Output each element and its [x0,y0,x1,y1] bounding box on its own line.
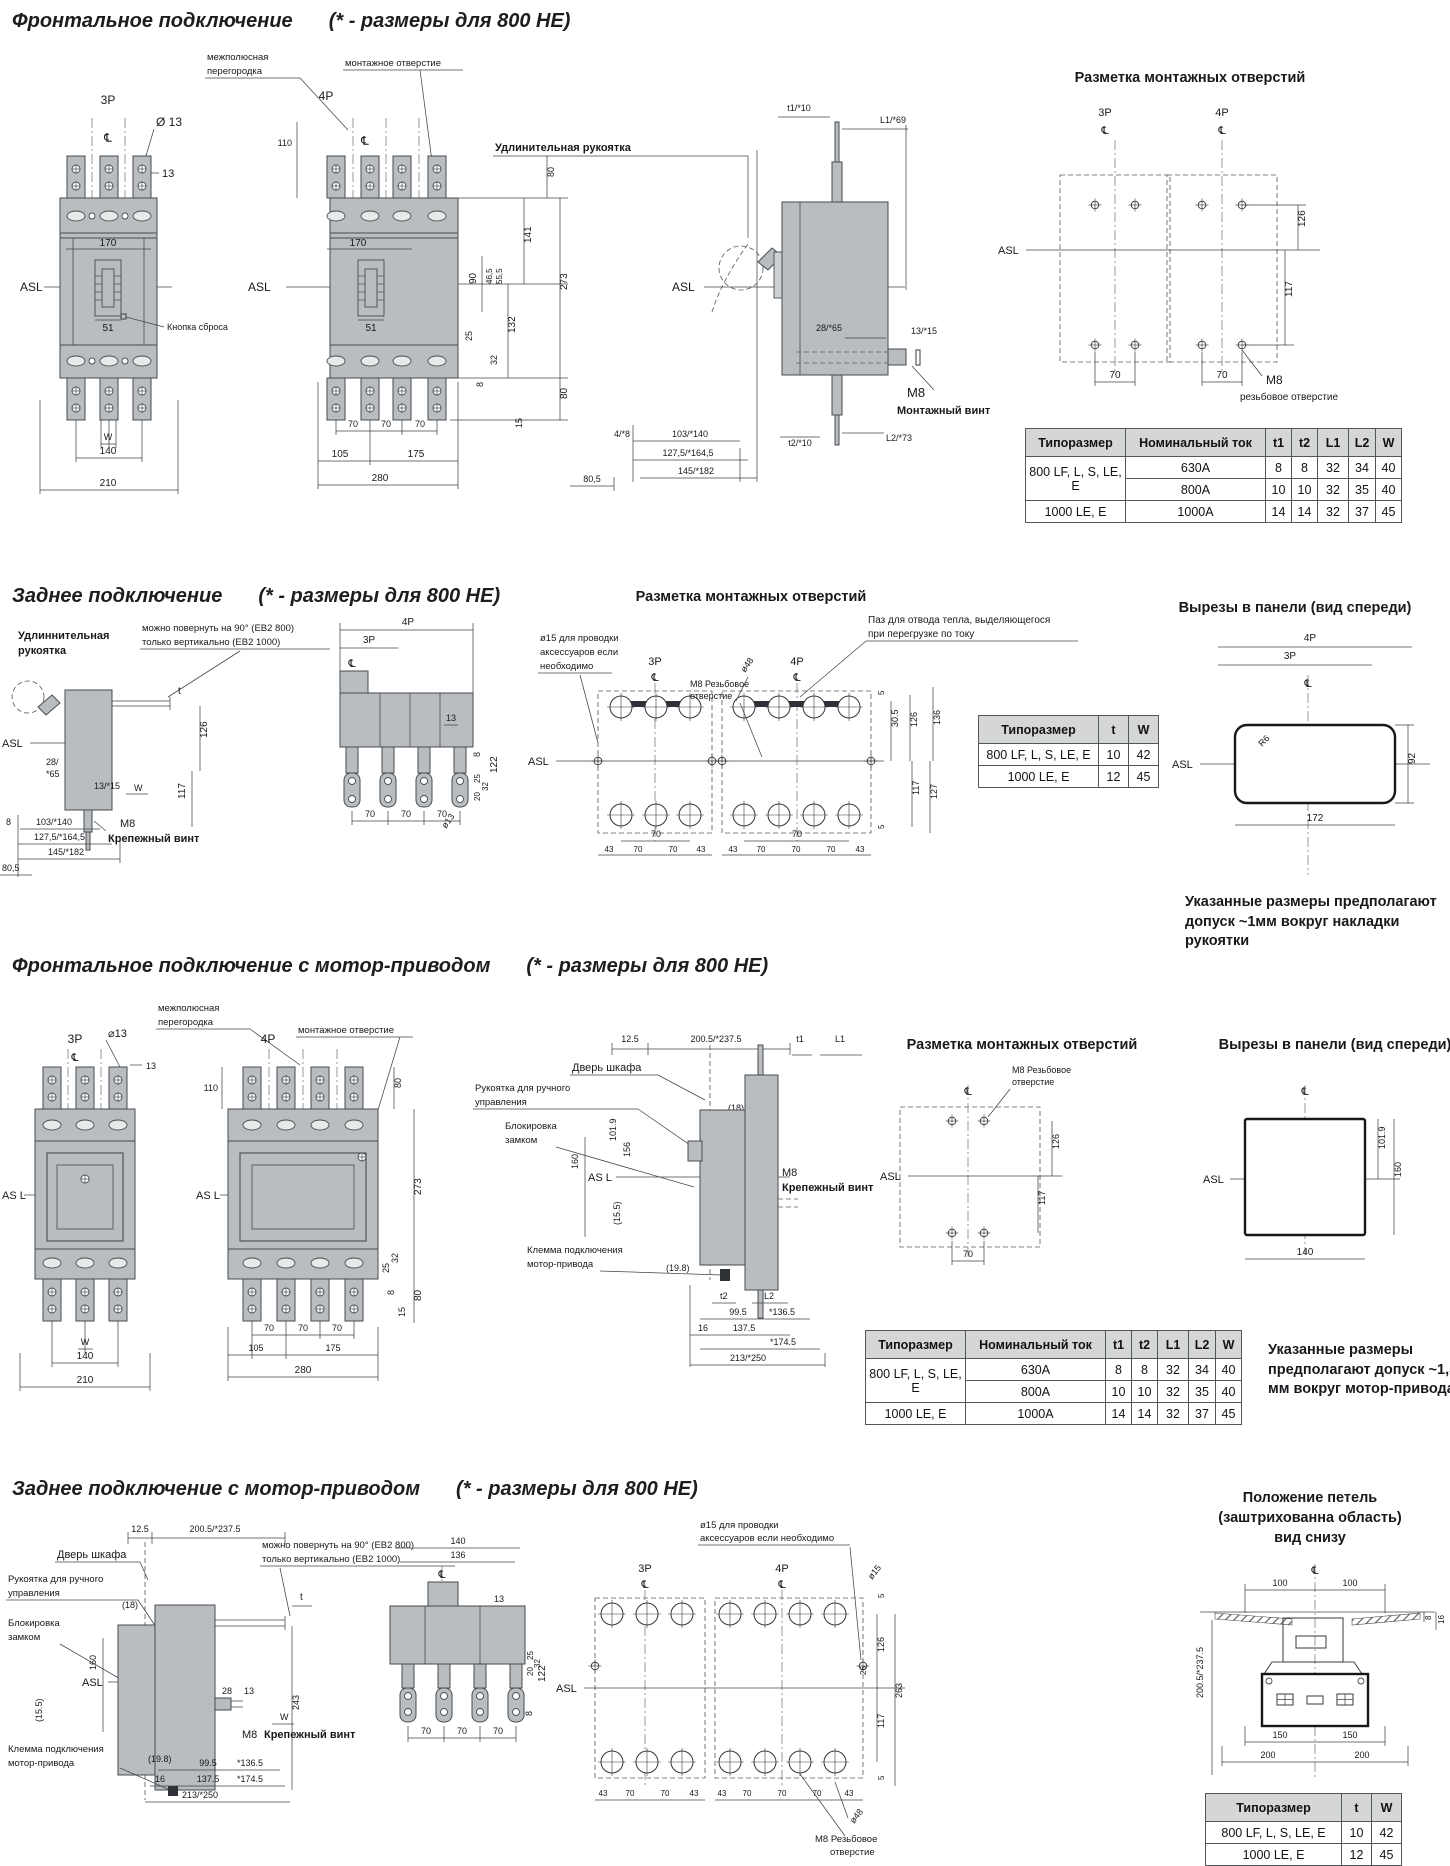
table-cell: t2 [1132,1331,1158,1359]
dim-label: 16 [155,1774,165,1784]
dim-label: 136 [932,710,942,725]
dim-label: 280 [372,473,389,484]
callout-label: перегородка [207,66,263,77]
dim-label: 70 [963,1249,973,1259]
drawing-subtitle: Разметка монтажных отверстий [1075,70,1306,86]
dim-label: 43 [718,1789,727,1798]
dim-label: 90 [468,272,479,284]
dimension-table-front-motor: ТипоразмерНоминальный токt1t2L1L2W 800 L… [865,1330,1242,1425]
drawing-rear-view: 4P 3P ℄ 13 707070 8 122 25 32 20 ø13 [340,617,500,830]
dim-label: 70 [264,1323,274,1333]
dim-label: 101.9 [608,1118,618,1141]
table-cell: 14 [1132,1403,1158,1425]
callout-label: Клемма подключения [8,1744,104,1755]
drawing-mounting-holes: Разметка монтажных отверстий 3P ℄ 4P ℄ A… [998,70,1339,403]
dim-label: 13 [244,1686,254,1696]
callout-label: Кнопка сброса [167,322,228,332]
table-cell: 14 [1106,1403,1132,1425]
dimension-table-rear: ТипоразмерtW 800 LF, L, S, LE, E1042 100… [978,715,1159,788]
dim-label: 117 [911,781,921,795]
dim-label: 70 [626,1789,635,1798]
centerline-symbol: ℄ [1217,125,1225,137]
table-cell: 800A [1126,479,1266,501]
dim-label: 5 [877,824,886,829]
table-cell: 12 [1099,766,1129,788]
table-cell: 32 [1158,1381,1189,1403]
dim-label: 200.5/*237.5 [690,1034,741,1044]
dim-label: 16 [1437,1615,1446,1624]
callout-label: замком [505,1135,537,1146]
callout-label: Паз для отвода тепла, выделяющегося [868,615,1050,626]
dim-label: 4/*8 [614,429,630,439]
callout-label: можно повернуть на 90° (EB2 800) [262,1540,414,1551]
dim-label: 100 [1342,1578,1357,1588]
table-cell: 1000 LE, E [979,766,1099,788]
dim-label: 28/*65 [816,323,842,333]
dim-label: M8 [242,1729,257,1741]
callout-label: резьбовое отверстие [1240,391,1339,403]
dim-label: 117 [1284,281,1295,297]
dim-label: 126 [199,721,210,738]
dim-label: 70 [415,419,425,429]
dim-label: 92 [1407,752,1418,764]
dim-label: 160 [1393,1162,1403,1177]
dim-label: 70 [778,1789,787,1798]
dim-label: 25 [464,331,474,341]
table-cell: L2 [1349,429,1376,457]
dim-label: 145/*182 [678,466,714,476]
table-cell: 1000 LE, E [866,1403,966,1425]
dim-label: 150 [1272,1730,1287,1740]
dim-label: (19.8) [666,1263,690,1273]
callout-label: отверстие [1012,1077,1054,1087]
dim-label: 70 [381,419,391,429]
dim-label: 80 [393,1078,403,1088]
dim-label: *174.5 [770,1337,796,1347]
drawing-canvas-rear-connection: Удлиннительная рукоятка можно повернуть … [0,575,1450,945]
asl-label: ASL [248,280,271,294]
asl-label: ASL [998,245,1019,257]
dim-label: 140 [77,1351,94,1362]
dim-label: 126 [1051,1134,1061,1149]
centerline-symbol: ℄ [347,658,355,670]
asl-label: ASL [556,1683,577,1695]
dim-label: 70 [421,1726,431,1736]
dim-label: 15 [514,418,524,428]
dim-label: 70 [493,1726,503,1736]
tolerance-note: Указанные размеры предполагают допуск ~1… [1268,1341,1450,1400]
callout-label: M8 Резьбовое [1012,1065,1071,1075]
table-cell: 42 [1129,744,1159,766]
dim-label: 43 [845,1789,854,1798]
asl-label: ASL [880,1171,901,1183]
dim-label: 156 [622,1142,632,1157]
dim-label: t2/*10 [788,438,812,448]
drawing-panel-cutout: Вырезы в панели (вид спереди) ℄ ASL 101.… [1203,1037,1450,1259]
callout-label: при перегрузке по току [868,629,974,640]
drawing-mounting-holes: ø15 для проводки аксессуаров если необхо… [556,1520,905,1858]
table-cell: Номинальный ток [966,1331,1106,1359]
dim-label: 13 [162,168,174,180]
dim-label: L1 [835,1034,845,1044]
centerline-symbol: ℄ [103,131,112,145]
dim-label: 43 [690,1789,699,1798]
callout-label: рукоятка [18,645,67,657]
table-cell: 40 [1216,1381,1242,1403]
dim-label: *136.5 [769,1307,795,1317]
callout-label: Рукоятка для ручного [8,1574,103,1585]
dim-label: 70 [757,845,766,854]
dim-label: 13 [494,1594,504,1604]
dim-label: 172 [1307,813,1324,824]
callout-label: необходимо [540,661,593,672]
drawing-subtitle: Разметка монтажных отверстий [636,589,867,605]
drawing-subtitle: Положение петель [1243,1490,1378,1506]
dim-label: 200 [1354,1750,1369,1760]
callout-label: M8 Резьбовое [690,679,749,689]
asl-label: ASL [2,738,23,750]
dim-label: 140 [100,446,117,457]
dim-label: 80,5 [2,863,20,873]
centerline-symbol: ℄ [437,1569,445,1581]
dim-label: ⌀13 [108,1028,127,1040]
table-cell: 12 [1342,1844,1372,1866]
callout-label: монтажное отверстие [298,1025,394,1036]
dim-label: 117 [177,783,188,799]
dim-label: 137.5 [197,1774,220,1784]
dim-label: 150 [1342,1730,1357,1740]
dim-label: 200.5/*237.5 [189,1524,240,1534]
dim-label: Ø 13 [156,115,182,129]
dim-label: 28 [222,1686,232,1696]
dim-label: 80 [559,387,570,399]
dim-label: 3P [363,635,376,646]
drawing-subtitle: Разметка монтажных отверстий [907,1037,1138,1053]
dim-label: 70 [669,845,678,854]
dim-label: 25 [526,1651,535,1660]
table-cell: 10 [1342,1822,1372,1844]
centerline-symbol: ℄ [640,1579,648,1591]
table-cell: W [1376,429,1402,457]
table-cell: 45 [1372,1844,1402,1866]
table-cell: 10 [1106,1381,1132,1403]
table-cell: 32 [1318,479,1349,501]
table-cell: 630A [1126,457,1266,479]
dim-label: 70 [1216,370,1228,381]
table-cell: 10 [1132,1381,1158,1403]
section-front-connection: Фронтальное подключение(* - размеры для … [0,0,1450,575]
dim-label: 103/*140 [672,429,708,439]
asl-label: AS L [588,1172,612,1184]
view-label: 3P [1098,107,1111,119]
dim-label: 8 [524,1711,534,1716]
dim-label: 43 [729,845,738,854]
centerline-symbol: ℄ [1303,678,1311,690]
table-cell: 8 [1106,1359,1132,1381]
table-cell: Типоразмер [979,716,1099,744]
dim-label: 100 [1272,1578,1287,1588]
drawing-subtitle: (заштрихованна область) [1218,1510,1402,1526]
dim-label: 5 [877,1775,886,1780]
section-rear-connection-motor: Заднее подключение с мотор-приводом(* - … [0,1470,1450,1866]
table-cell: L1 [1318,429,1349,457]
table-cell: L2 [1189,1331,1216,1359]
table-cell: 32 [1318,457,1349,479]
dim-label: 70 [332,1323,342,1333]
callout-label: мотор-привода [527,1259,594,1270]
dim-label: 99.5 [729,1307,747,1317]
centerline-symbol: ℄ [792,672,800,684]
centerline-symbol: ℄ [1300,1086,1308,1098]
dim-label: 4P [402,617,415,628]
callout-label: Клемма подключения [527,1245,623,1256]
dim-label: 105 [248,1343,263,1353]
table-cell: 45 [1376,501,1402,523]
dim-label: 140 [1297,1247,1314,1258]
table-cell: 40 [1376,479,1402,501]
callout-label: Рукоятка для ручного [475,1083,570,1094]
centerline-symbol: ℄ [1310,1565,1318,1577]
dim-label: 132 [507,316,518,333]
callout-label: только вертикально (EB2 1000) [142,637,280,648]
dimension-table-front: ТипоразмерНоминальный токt1t2L1L2W 800 L… [1025,428,1402,523]
view-label: 3P [68,1032,83,1046]
table-cell: 8 [1266,457,1292,479]
dim-label: *174.5 [237,1774,263,1784]
dim-label: 70 [743,1789,752,1798]
drawing-side-view-motor: 12.5 200.5/*237.5 t1L1 Дверь шкафа Рукоя… [473,1034,874,1367]
table-cell: t [1342,1794,1372,1822]
dim-label: 30.5 [890,709,900,727]
dim-label: 8 [475,382,485,387]
dim-label: 32 [481,782,490,791]
table-cell: 800 LF, L, S, LE, E [866,1359,966,1403]
table-cell: 1000A [1126,501,1266,523]
dim-label: 160 [88,1655,98,1670]
table-cell: 800A [966,1381,1106,1403]
drawing-panel-cutout: Вырезы в панели (вид спереди) 4P 3P ℄ AS… [1172,600,1430,875]
table-cell: 37 [1189,1403,1216,1425]
dim-label: t1 [796,1034,804,1044]
table-cell: 34 [1189,1359,1216,1381]
dim-label: 213/*250 [182,1790,218,1800]
table-cell: 8 [1292,457,1318,479]
view-label: 4P [261,1032,276,1046]
dim-label: 43 [856,845,865,854]
dim-label: 110 [204,1083,218,1093]
dim-label: L2/*73 [886,433,912,443]
dimension-table-rear-motor: ТипоразмерtW 800 LF, L, S, LE, E1042 100… [1205,1793,1402,1866]
callout-label: монтажное отверстие [345,58,441,69]
dim-label: 80,5 [583,474,601,484]
callout-label: можно повернуть на 90° (EB2 800) [142,623,294,634]
table-cell: 14 [1266,501,1292,523]
dim-label: 43 [605,845,614,854]
dim-label: 70 [661,1789,670,1798]
dim-label: 28/ [46,757,59,767]
dim-label: 8 [6,817,11,827]
view-label: 3P [638,1563,651,1575]
drawing-side-view-motor: 12.5 200.5/*237.5 Дверь шкафа можно пове… [6,1524,455,1802]
table-cell: 40 [1376,457,1402,479]
dim-label: 8 [1424,1615,1433,1620]
dim-label: *136.5 [237,1758,263,1768]
table-cell: Типоразмер [1026,429,1126,457]
dim-label: 70 [298,1323,308,1333]
catalog-page: Фронтальное подключение(* - размеры для … [0,0,1450,1866]
centerline-symbol: ℄ [650,672,658,684]
dim-label: 117 [876,1714,886,1728]
section-front-connection-motor: Фронтальное подключение с мотор-приводом… [0,945,1450,1470]
centerline-symbol: ℄ [360,134,369,148]
tolerance-note: Указанные размеры предполагают допуск ~1… [1185,893,1450,952]
dim-label: 4P [1304,633,1317,644]
drawing-side-view: Удлинительная рукоятка ASL t1/*10 L1/*69… [493,103,991,491]
table-cell: 35 [1189,1381,1216,1403]
callout-label: Дверь шкафа [572,1062,642,1074]
dim-label: 12.5 [621,1034,639,1044]
dim-label: 122 [489,756,500,773]
table-cell: 10 [1266,479,1292,501]
dim-label: 15 [397,1307,407,1317]
callout-label: Удлинительная рукоятка [495,142,632,154]
dim-label: 127,5/*164,5 [662,448,713,458]
callout-label: ø15 для проводки [540,633,619,644]
dim-label: 8 [472,752,482,757]
dim-label: 141 [523,226,534,243]
table-cell: 32 [1318,501,1349,523]
table-cell: 800 LF, L, S, LE, E [1206,1822,1342,1844]
dim-label: 70 [792,829,802,839]
dim-label: 110 [278,138,292,148]
dim-label: t1/*10 [787,103,811,113]
view-label: 4P [775,1563,788,1575]
dim-label: 170 [350,238,367,249]
dim-label: M8 [907,385,925,400]
dim-label: 32 [489,355,499,365]
dim-label: 26 [859,1666,868,1675]
table-cell: 45 [1216,1403,1242,1425]
dim-label: 126 [909,712,919,727]
dim-label: 175 [325,1343,340,1353]
dim-label: W [81,1337,90,1347]
dim-label: 51 [365,323,377,334]
dim-label: 126 [876,1637,886,1652]
dim-label: 263 [894,1683,904,1698]
table-cell: 1000 LE, E [1026,501,1126,523]
asl-label: AS L [196,1190,220,1202]
dim-label: 145/*182 [48,847,84,857]
asl-label: ASL [20,280,43,294]
table-cell: 800 LF, L, S, LE, E [1026,457,1126,501]
callout-label: аксессуаров если необходимо [700,1533,834,1544]
dim-label: 25 [381,1263,391,1273]
drawing-front-3p-view: 3P ℄ Ø 13 13 170 51 Кнопка сброса ASL [20,93,228,494]
callout-label: межполюсная [158,1003,219,1014]
dim-label: 273 [559,273,570,290]
dim-label: 70 [634,845,643,854]
dim-label: 5 [877,690,886,695]
callout-label: Блокировка [8,1618,61,1629]
drawing-rear-view: 140 136 ℄ 13 707070 122 8 25 32 20 [390,1536,548,1742]
table-cell: 45 [1129,766,1159,788]
callout-label: Крепежный винт [782,1182,874,1194]
table-cell: 32 [1158,1403,1189,1425]
callout-label: управления [475,1097,527,1108]
table-cell: 40 [1216,1359,1242,1381]
callout-label: M8 Резьбовое [815,1834,877,1845]
drawing-side-view: Удлиннительная рукоятка можно повернуть … [0,623,330,877]
table-cell: W [1216,1331,1242,1359]
table-cell: Типоразмер [1206,1794,1342,1822]
dim-label: 46,5 [485,268,494,284]
dim-label: 3P [1284,651,1297,662]
dim-label: 70 [457,1726,467,1736]
dim-label: 103/*140 [36,817,72,827]
centerline-symbol: ℄ [1100,125,1108,137]
callout-label: Дверь шкафа [57,1549,127,1561]
dim-label: t2 [720,1291,728,1301]
dim-label: 105 [332,449,349,460]
dim-label: 126 [1297,210,1308,227]
dim-label: L1/*69 [880,115,906,125]
dim-label: 243 [291,1695,301,1710]
dim-label: 43 [697,845,706,854]
dim-label: 280 [295,1365,312,1376]
table-cell: Номинальный ток [1126,429,1266,457]
table-cell: 32 [1158,1359,1189,1381]
dim-label: 127 [929,784,939,799]
asl-label: ASL [672,280,695,294]
callout-label: перегородка [158,1017,214,1028]
dim-label: 70 [348,419,358,429]
table-cell: t [1099,716,1129,744]
table-cell: 800 LF, L, S, LE, E [979,744,1099,766]
dim-label: L2 [764,1291,774,1301]
dim-label: t [300,1592,303,1603]
callout-label: только вертикально (EB2 1000) [262,1554,400,1565]
asl-label: ASL [1172,759,1193,771]
drawing-hinge-position: Положение петель (заштрихованна область)… [1195,1490,1446,1780]
dim-label: 273 [413,1178,424,1195]
drawing-subtitle: вид снизу [1274,1530,1346,1546]
dim-label: 43 [599,1789,608,1798]
drawing-front-4p-view: межполюсная перегородка 4P монтажное отв… [156,1003,424,1381]
callout-label: Блокировка [505,1121,558,1132]
dim-label: W [280,1712,289,1722]
dim-label: 160 [570,1154,580,1169]
asl-label: AS L [2,1190,26,1202]
dim-label: 13 [446,713,456,723]
view-label: 3P [648,656,661,668]
callout-label: Монтажный винт [897,405,991,417]
dim-label: 13 [146,1061,156,1071]
dim-label: 51 [102,323,114,334]
dim-label: 117 [1037,1191,1047,1205]
dim-label: 70 [401,809,411,819]
centerline-symbol: ℄ [963,1086,971,1098]
table-cell: t1 [1106,1331,1132,1359]
dim-label: 55,5 [495,268,504,284]
centerline-symbol: ℄ [70,1052,78,1064]
dim-label: 213/*250 [730,1353,766,1363]
callout-label: ø15 для проводки [700,1520,779,1531]
view-label: 4P [1215,107,1228,119]
callout-label: замком [8,1632,40,1643]
view-label: 4P [790,656,803,668]
dim-label: 140 [450,1536,465,1546]
dim-label: 32 [390,1253,400,1263]
